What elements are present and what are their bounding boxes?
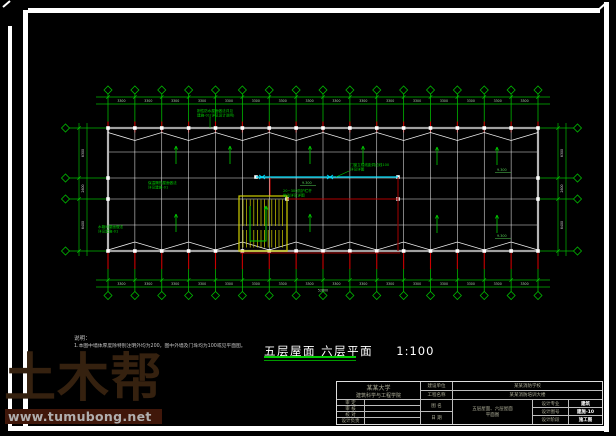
- dim-text: 3300: [198, 99, 206, 103]
- dim-text: 3300: [521, 99, 529, 103]
- dim-text: 3300: [117, 282, 125, 286]
- slope-arrows: [174, 146, 498, 233]
- school-name: 某某大学: [366, 383, 390, 392]
- annotation-text: 20~300防护栏杆: [283, 188, 312, 193]
- dim-text: 2600: [560, 184, 564, 192]
- dim-text: 3300: [332, 99, 340, 103]
- label-project: 工程名称: [421, 391, 453, 400]
- title-underline-thin: [264, 360, 356, 361]
- drawing-title-scale: 1:100: [396, 344, 434, 358]
- label-date: 日 期: [421, 412, 453, 424]
- dim-text: 6300: [560, 149, 564, 157]
- column-grid: 3300330033003300330033003300330033003300…: [62, 86, 582, 300]
- watermark-url: www.tumubong.net: [5, 409, 162, 424]
- annotation-text: 详见建施-01: [98, 229, 118, 234]
- dim-text: 3300: [252, 99, 260, 103]
- dim-text: 6400: [81, 221, 85, 229]
- dim-text: 3300: [521, 282, 529, 286]
- label-sheet-no: 设计图号: [533, 408, 569, 416]
- annotation-text: 保温隔热屋面做法: [148, 180, 177, 185]
- titleblock-school: 某某大学 建筑科学与工程学院: [337, 382, 421, 400]
- dim-text: 3300: [494, 282, 502, 286]
- dim-text: 2600: [81, 184, 85, 192]
- elevation-text: 9.300: [497, 168, 507, 172]
- school-dept: 建筑科学与工程学院: [356, 392, 401, 399]
- dim-text: 3300: [386, 99, 394, 103]
- dim-text: 3300: [467, 282, 475, 286]
- watermark-url-bar: www.tumubong.net: [5, 409, 162, 424]
- label-designer: 设计负责: [337, 418, 365, 424]
- dim-text: 3300: [440, 282, 448, 286]
- annotation-text: 建施-01(详见设计说明): [197, 113, 235, 118]
- dim-text: 3300: [144, 99, 152, 103]
- annotation-text: 水箱间屋面做法: [98, 224, 124, 229]
- title-underline: [264, 356, 356, 359]
- dim-text: 3300: [117, 99, 125, 103]
- dim-text: 3300: [198, 282, 206, 286]
- dim-text: 3300: [494, 99, 502, 103]
- value-discipline: 建筑: [569, 400, 602, 408]
- dim-text: 3300: [171, 99, 179, 103]
- annotation-text: 详见详图: [350, 167, 365, 172]
- cad-sheet: 3300330033003300330033003300330033003300…: [0, 0, 616, 436]
- dim-text: 52800: [318, 289, 328, 293]
- dim-text: 3300: [413, 99, 421, 103]
- dim-text: 3300: [225, 99, 233, 103]
- dim-text: 3300: [413, 282, 421, 286]
- interior-grid: [108, 129, 538, 250]
- notes-heading: 说明：: [74, 336, 246, 343]
- dim-text: 6400: [560, 221, 564, 229]
- watermark-brand: 土木帮: [4, 351, 163, 407]
- title-block: 某某大学 建筑科学与工程学院 建设单位 某某消防学校 工程名称 某某消防培训大楼…: [336, 381, 603, 425]
- value-sheet-no: 建施-10: [569, 408, 602, 416]
- label-sheet-name: 图 名: [421, 400, 453, 412]
- dim-text: 3300: [467, 99, 475, 103]
- elevation-text: 9.300: [497, 234, 507, 238]
- dim-text: 3300: [440, 99, 448, 103]
- dim-text: 3300: [332, 282, 340, 286]
- dim-text: 3300: [359, 99, 367, 103]
- annotation-text: 详见建施-01: [148, 185, 168, 190]
- dim-text: 3300: [144, 282, 152, 286]
- dim-text: 3300: [171, 282, 179, 286]
- dim-text: 3300: [359, 282, 367, 286]
- value-project: 某某消防培训大楼: [453, 391, 602, 400]
- dim-text: 3300: [306, 99, 314, 103]
- label-phase: 设计阶段: [533, 416, 569, 424]
- dim-text: 3300: [306, 282, 314, 286]
- red-walls: [240, 177, 400, 253]
- annotation-text: 门窗立樘线距洞边线100: [350, 162, 390, 167]
- label-owner: 建设单位: [421, 382, 453, 391]
- value-phase: 施工图: [569, 416, 602, 424]
- label-discipline: 设计专业: [533, 400, 569, 408]
- annotation-text: 做法详见详图: [283, 193, 305, 198]
- dim-text: 3300: [279, 99, 287, 103]
- value-owner: 某某消防学校: [453, 382, 602, 391]
- drawing-name-cell: 五层屋面、六层屋面 平面图: [453, 400, 533, 424]
- dim-text: 6300: [81, 149, 85, 157]
- value-designer: [365, 418, 421, 424]
- general-notes: 说明： 1.本图中墙体厚度除特别注明外均为200，图中外墙及门垛均为100或见平…: [74, 336, 246, 350]
- drawing-name-line2: 平面图: [486, 412, 500, 418]
- dim-text: 3300: [225, 282, 233, 286]
- dim-text: 3300: [386, 282, 394, 286]
- elevation-text: 9.300: [302, 181, 312, 185]
- dim-text: 3300: [279, 282, 287, 286]
- annotation-text: 刚性防水屋面做法详见: [197, 108, 233, 113]
- dim-text: 3300: [252, 282, 260, 286]
